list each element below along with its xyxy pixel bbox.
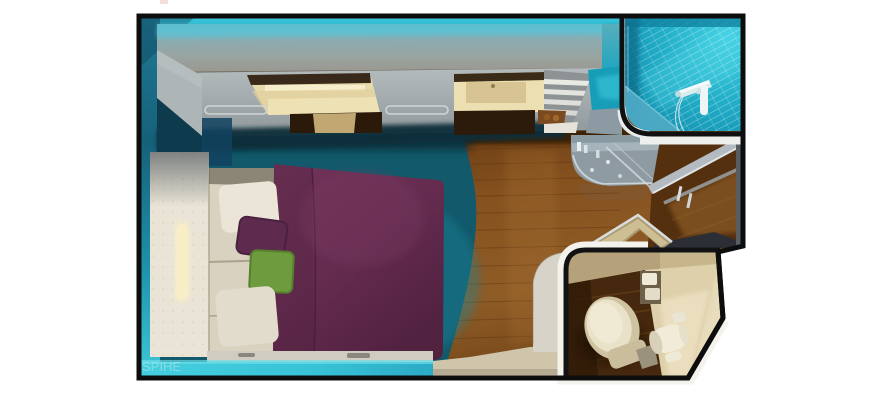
- svg-text:SPIHE: SPIHE: [142, 359, 181, 374]
